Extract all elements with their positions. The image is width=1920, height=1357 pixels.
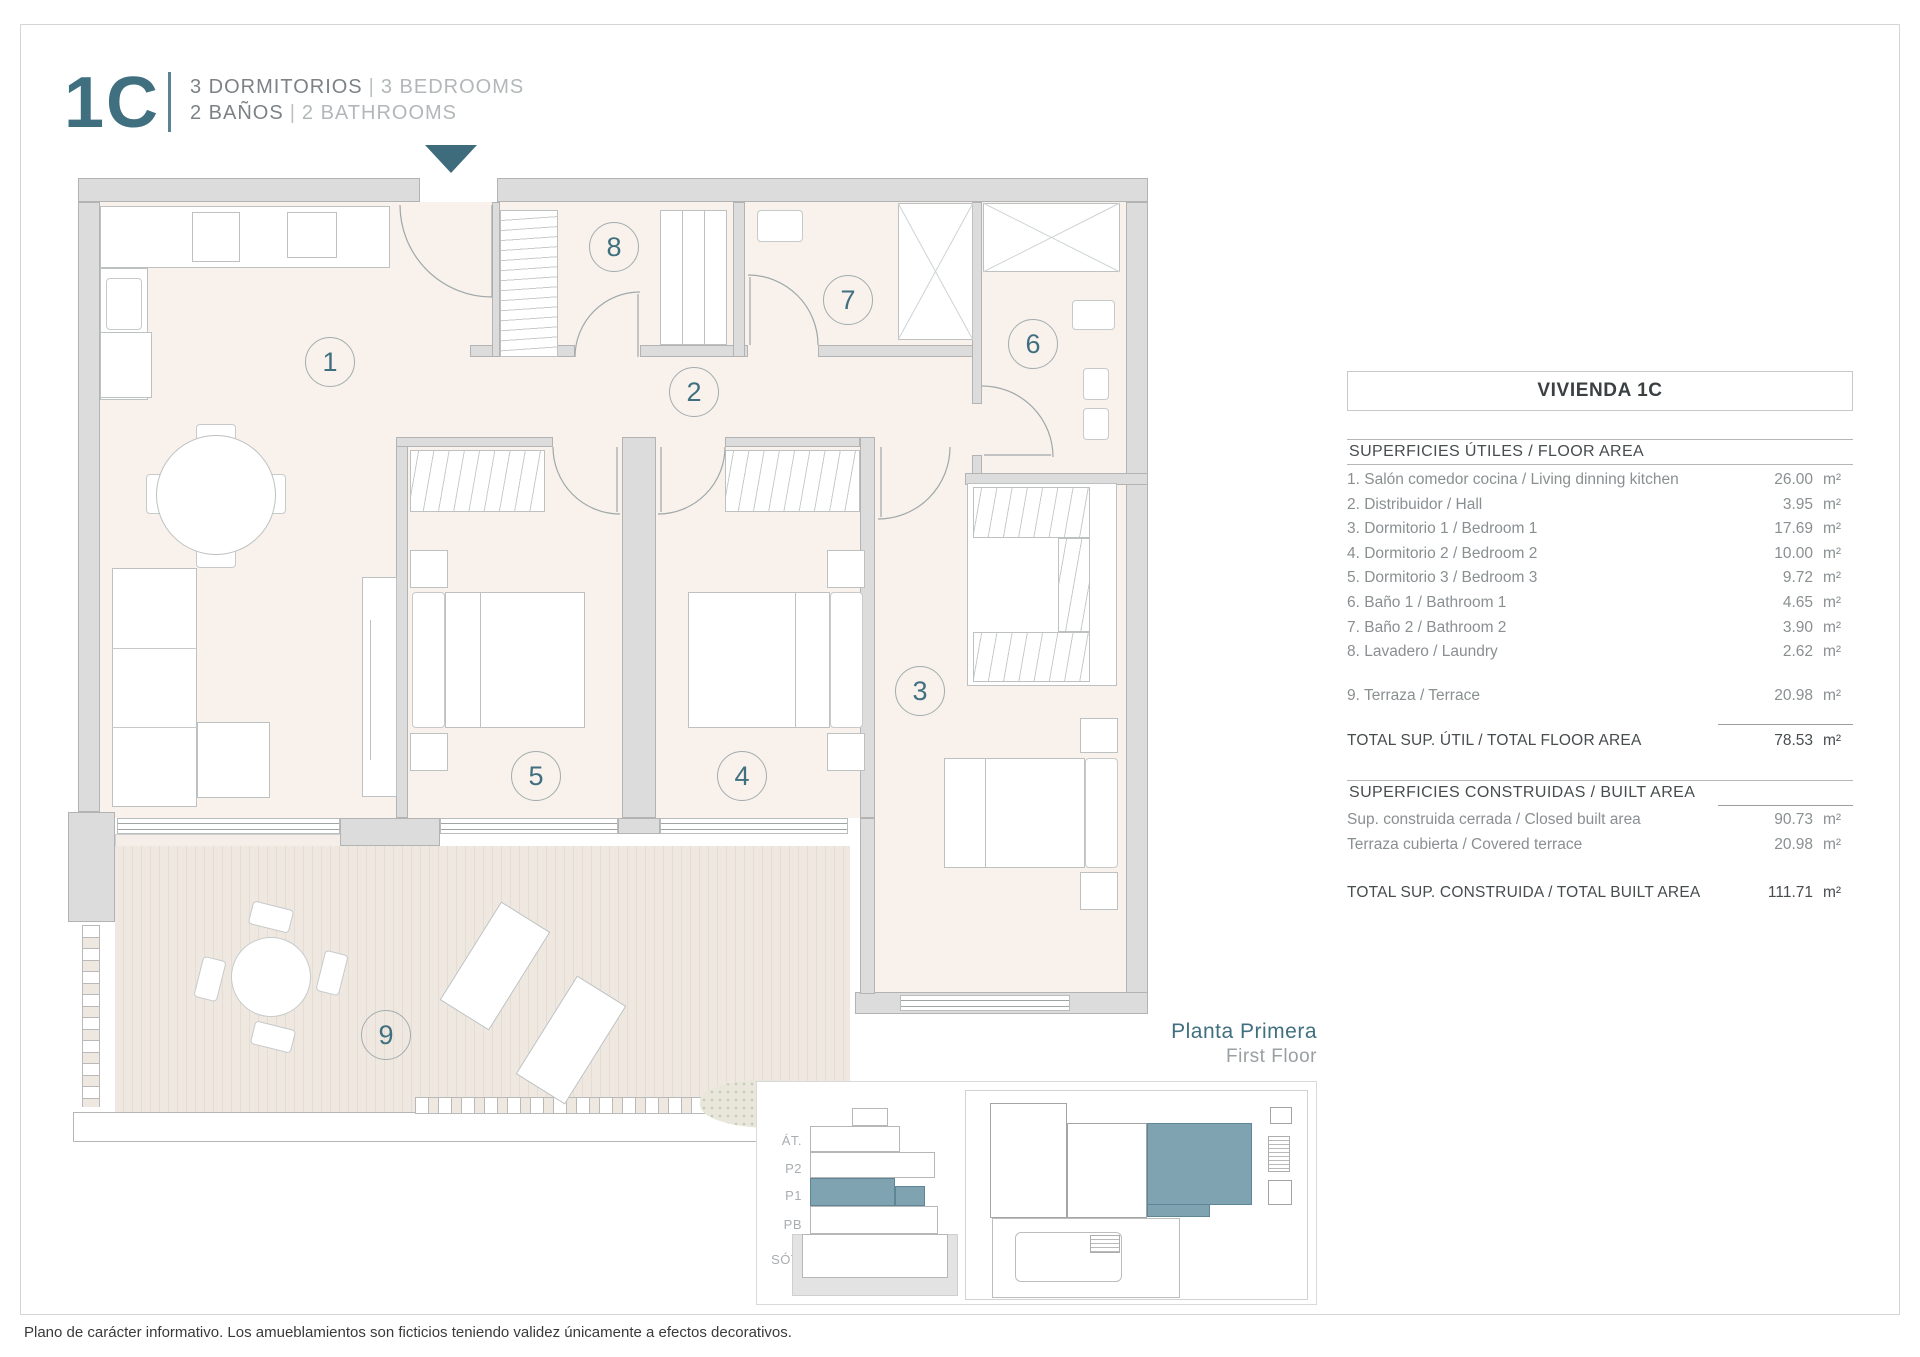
wall-between-bedrooms xyxy=(622,437,656,818)
total-floor-area-row: TOTAL SUP. ÚTIL / TOTAL FLOOR AREA 78.53… xyxy=(1347,729,1853,754)
bedroom2-wardrobe xyxy=(725,450,860,512)
area-row-unit: m² xyxy=(1813,517,1853,542)
closet-line xyxy=(682,210,683,345)
bathrooms-en: 2 BATHROOMS xyxy=(302,102,457,124)
area-row: 6. Baño 1 / Bathroom 14.65m² xyxy=(1347,591,1853,616)
bedroom1-bed xyxy=(944,758,1085,868)
kitchen-counter xyxy=(100,206,390,268)
room-circle-6: 6 xyxy=(1008,319,1058,369)
siteplan-unit-1c-highlight-step xyxy=(1147,1205,1210,1217)
wall-bath2-bottom xyxy=(818,345,973,357)
keyplan-level-PB: PB xyxy=(758,1217,802,1232)
total-built-area-value: 111.71 xyxy=(1755,881,1813,906)
sofa-cushion-line xyxy=(112,727,197,728)
area-row-unit: m² xyxy=(1813,833,1853,858)
terrace-row: 9. Terraza / Terrace 20.98 m² xyxy=(1347,684,1853,709)
bed-sheet-line xyxy=(985,758,986,868)
terrace-row-value: 20.98 xyxy=(1755,684,1813,709)
area-row: 5. Dormitorio 3 / Bedroom 39.72m² xyxy=(1347,566,1853,591)
window-living xyxy=(117,818,340,834)
area-row-val: 9.72 xyxy=(1755,566,1813,591)
siteplan-elevator xyxy=(1270,1107,1292,1124)
bed-pillows xyxy=(412,592,445,728)
hall-closet xyxy=(660,210,727,345)
area-row: 4. Dormitorio 2 / Bedroom 210.00m² xyxy=(1347,542,1853,567)
area-row: 2. Distribuidor / Hall3.95m² xyxy=(1347,493,1853,518)
wall-top-right xyxy=(497,178,1148,202)
siteplan-stairs xyxy=(1268,1136,1290,1172)
dining-table xyxy=(156,435,276,555)
wall-living-bedrooms xyxy=(396,437,408,818)
closet-line xyxy=(704,210,705,345)
area-row-unit: m² xyxy=(1813,493,1853,518)
window-bedroom3 xyxy=(440,818,618,834)
area-row-unit: m² xyxy=(1813,616,1853,641)
total-built-area-row: TOTAL SUP. CONSTRUIDA / TOTAL BUILT AREA… xyxy=(1347,881,1853,906)
area-row-unit: m² xyxy=(1813,640,1853,665)
room-circle-4: 4 xyxy=(717,751,767,801)
built-area-section-header: SUPERFICIES CONSTRUIDAS / BUILT AREA xyxy=(1347,781,1853,805)
floor-area-rows: 1. Salón comedor cocina / Living dinning… xyxy=(1347,465,1853,665)
nightstand xyxy=(410,550,448,588)
area-row-lbl: 2. Distribuidor / Hall xyxy=(1347,493,1755,518)
area-row: 8. Lavadero / Laundry2.62m² xyxy=(1347,640,1853,665)
header-subtitle: 3 DORMITORIOS|3 BEDROOMS 2 BAÑOS|2 BATHR… xyxy=(190,74,524,126)
wall-bedroom2-top xyxy=(725,437,860,447)
section-level-sotano xyxy=(802,1234,948,1278)
wall-laundry-bottom-right xyxy=(640,345,748,357)
siteplan-shaft xyxy=(1268,1180,1292,1205)
nightstand xyxy=(1080,872,1118,910)
bedroom1-wardrobe-top xyxy=(973,487,1090,538)
bed-sheet-line xyxy=(795,592,796,728)
nightstand xyxy=(1080,718,1118,753)
total-floor-area-value: 78.53 xyxy=(1755,729,1813,754)
separator: | xyxy=(284,102,302,124)
room-circle-5: 5 xyxy=(511,751,561,801)
bed-sheet-line xyxy=(480,592,481,728)
wall-left-lower xyxy=(68,812,115,922)
area-row-lbl: 4. Dormitorio 2 / Bedroom 2 xyxy=(1347,542,1755,567)
total-floor-area-unit: m² xyxy=(1813,729,1853,754)
room-circle-7: 7 xyxy=(823,275,873,325)
bath2-sink xyxy=(757,210,803,242)
area-row-val: 26.00 xyxy=(1755,468,1813,493)
floor-level-es: Planta Primera xyxy=(1171,1020,1317,1044)
area-row: 1. Salón comedor cocina / Living dinning… xyxy=(1347,468,1853,493)
keyplan-level-P1: P1 xyxy=(758,1188,802,1203)
bedroom3-wardrobe xyxy=(410,450,545,512)
section-level-pb xyxy=(810,1206,938,1234)
area-row-lbl: 7. Baño 2 / Bathroom 2 xyxy=(1347,616,1755,641)
bidet xyxy=(1083,408,1109,440)
area-row-unit: m² xyxy=(1813,591,1853,616)
bath1-shower xyxy=(983,203,1120,272)
area-table-title: VIVIENDA 1C xyxy=(1347,371,1853,411)
sofa-long xyxy=(112,568,197,807)
section-level-p2 xyxy=(810,1152,935,1178)
stove xyxy=(192,212,240,262)
area-row-val: 17.69 xyxy=(1755,517,1813,542)
total-floor-area-label: TOTAL SUP. ÚTIL / TOTAL FLOOR AREA xyxy=(1347,729,1755,754)
wall-hall-bath1-upper xyxy=(972,202,982,404)
siteplan-unit-a xyxy=(990,1103,1067,1218)
bedroom2-bed xyxy=(688,592,830,728)
siteplan-unit-b xyxy=(1067,1123,1147,1218)
floor-level-label: Planta Primera First Floor xyxy=(1171,1020,1317,1068)
wall-bedroom1-terrace xyxy=(860,818,875,994)
floor-area-section-header: SUPERFICIES ÚTILES / FLOOR AREA xyxy=(1347,440,1853,464)
nightstand xyxy=(827,550,865,588)
area-row-val: 20.98 xyxy=(1755,833,1813,858)
bathrooms-line: 2 BAÑOS|2 BATHROOMS xyxy=(190,100,524,126)
bedrooms-en: 3 BEDROOMS xyxy=(381,76,524,98)
area-row-val: 3.95 xyxy=(1755,493,1813,518)
unit-title: 1C xyxy=(64,62,160,144)
section-level-atico xyxy=(810,1126,900,1152)
room-circle-1: 1 xyxy=(305,337,355,387)
bed-pillows xyxy=(1085,758,1118,868)
area-row: Terraza cubierta / Covered terrace20.98m… xyxy=(1347,833,1853,858)
wall-left xyxy=(78,202,100,812)
total-rule xyxy=(1718,724,1853,725)
bath1-sink xyxy=(1072,300,1115,330)
window-bedroom1 xyxy=(900,995,1070,1011)
tv-unit xyxy=(362,577,397,797)
area-row-val: 10.00 xyxy=(1755,542,1813,567)
section-level-p1-highlight-step xyxy=(895,1186,925,1206)
bedrooms-es: 3 DORMITORIOS xyxy=(190,76,363,98)
section-level-p1-highlight xyxy=(810,1178,895,1206)
area-row-val: 2.62 xyxy=(1755,640,1813,665)
wall-stub-terrace xyxy=(340,818,440,846)
area-row-unit: m² xyxy=(1813,468,1853,493)
wall-bedroom3-top xyxy=(396,437,553,447)
bed-pillows xyxy=(830,592,863,728)
section-attic-roof xyxy=(852,1108,888,1126)
area-row-unit: m² xyxy=(1813,808,1853,833)
terrace-row-unit: m² xyxy=(1813,684,1853,709)
area-row-lbl: Sup. construida cerrada / Closed built a… xyxy=(1347,808,1755,833)
terrace-balustrade-left xyxy=(82,925,100,1107)
area-row-lbl: 1. Salón comedor cocina / Living dinning… xyxy=(1347,468,1755,493)
separator: | xyxy=(363,76,381,98)
area-row-lbl: 8. Lavadero / Laundry xyxy=(1347,640,1755,665)
wall-closet-left xyxy=(492,202,500,357)
bath2-shower xyxy=(898,203,973,340)
bedroom1-wardrobe-bottom xyxy=(973,632,1090,682)
nightstand xyxy=(410,733,448,771)
area-table: VIVIENDA 1C SUPERFICIES ÚTILES / FLOOR A… xyxy=(1347,371,1853,906)
room-circle-8: 8 xyxy=(589,222,639,272)
bathrooms-es: 2 BAÑOS xyxy=(190,102,284,124)
window-bedroom2 xyxy=(660,818,848,834)
floor-level-en: First Floor xyxy=(1171,1046,1317,1068)
bedroom3-bed xyxy=(445,592,585,728)
room-circle-2: 2 xyxy=(669,367,719,417)
wall-top-left xyxy=(78,178,420,202)
header-divider xyxy=(168,72,171,132)
wall-right xyxy=(1126,202,1148,1014)
hall-shelving xyxy=(500,210,558,357)
total-built-area-label: TOTAL SUP. CONSTRUIDA / TOTAL BUILT AREA xyxy=(1347,881,1755,906)
kitchen-appliance xyxy=(287,212,337,258)
built-area-rows: Sup. construida cerrada / Closed built a… xyxy=(1347,806,1853,857)
sofa-chaise xyxy=(197,722,270,798)
terrace-row-label: 9. Terraza / Terrace xyxy=(1347,684,1755,709)
total-built-area-unit: m² xyxy=(1813,881,1853,906)
siteplan-pool-steps xyxy=(1090,1235,1120,1253)
terrace-table xyxy=(231,937,311,1017)
room-circle-3: 3 xyxy=(895,666,945,716)
area-row: 7. Baño 2 / Bathroom 23.90m² xyxy=(1347,616,1853,641)
bedroom1-wardrobe-right xyxy=(1058,538,1090,632)
area-row-val: 4.65 xyxy=(1755,591,1813,616)
sofa-cushion-line xyxy=(112,648,197,649)
disclaimer-text: Plano de carácter informativo. Los amueb… xyxy=(24,1324,792,1341)
tv-line xyxy=(370,620,371,760)
area-row: Sup. construida cerrada / Closed built a… xyxy=(1347,808,1853,833)
toilet xyxy=(1083,368,1109,400)
area-row: 3. Dormitorio 1 / Bedroom 117.69m² xyxy=(1347,517,1853,542)
kitchen-cabinet xyxy=(100,332,152,398)
bedrooms-line: 3 DORMITORIOS|3 BEDROOMS xyxy=(190,74,524,100)
siteplan-unit-1c-highlight xyxy=(1147,1123,1252,1205)
area-row-lbl: Terraza cubierta / Covered terrace xyxy=(1347,833,1755,858)
wall-stub-bedrooms xyxy=(618,818,660,834)
nightstand xyxy=(827,733,865,771)
wall-bath2-left xyxy=(733,202,745,357)
area-row-lbl: 5. Dormitorio 3 / Bedroom 3 xyxy=(1347,566,1755,591)
keyplan-level-T: ÁT. xyxy=(758,1133,802,1148)
area-row-lbl: 3. Dormitorio 1 / Bedroom 1 xyxy=(1347,517,1755,542)
area-row-unit: m² xyxy=(1813,566,1853,591)
room-circle-9: 9 xyxy=(361,1010,411,1060)
area-row-lbl: 6. Baño 1 / Bathroom 1 xyxy=(1347,591,1755,616)
kitchen-sink xyxy=(106,278,142,330)
keyplan-level-P2: P2 xyxy=(758,1161,802,1176)
area-row-unit: m² xyxy=(1813,542,1853,567)
area-row-val: 3.90 xyxy=(1755,616,1813,641)
area-row-val: 90.73 xyxy=(1755,808,1813,833)
